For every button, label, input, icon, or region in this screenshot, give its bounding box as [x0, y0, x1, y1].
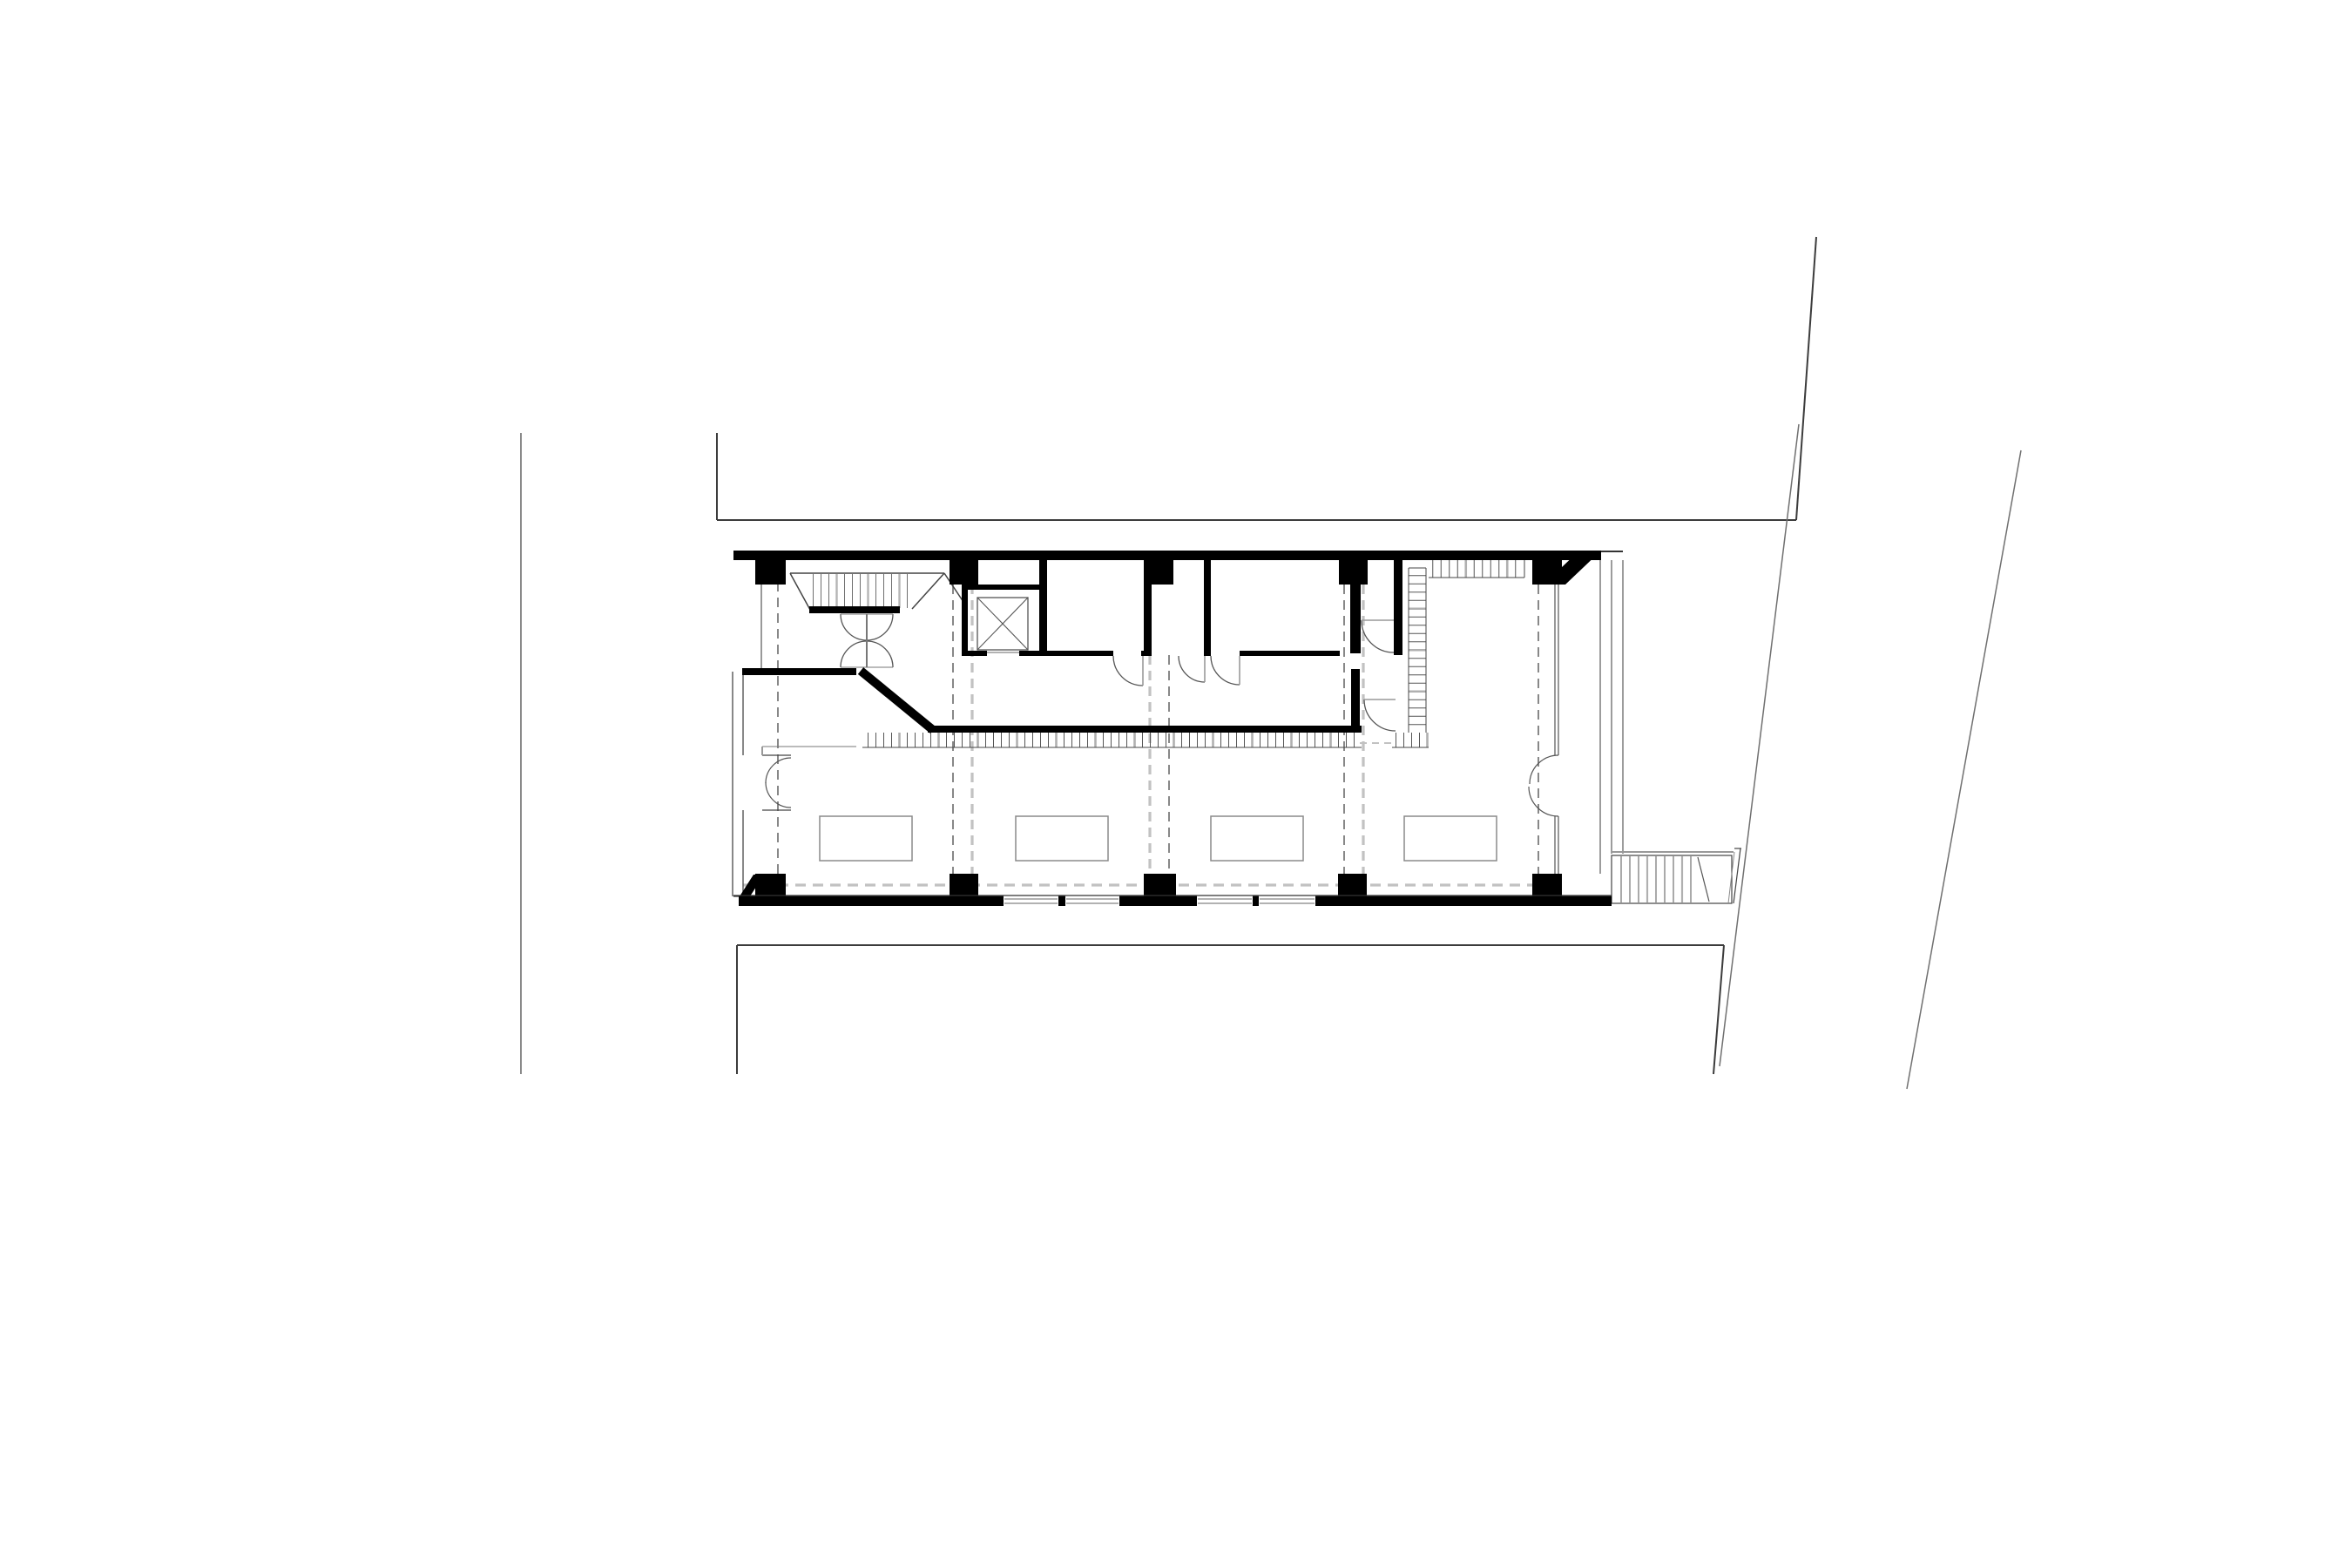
- top-wall: [733, 551, 1601, 560]
- room-wall-b: [1240, 651, 1340, 656]
- table-4: [1404, 816, 1497, 861]
- column-top-5: [1532, 560, 1562, 585]
- room-wall-a: [1047, 651, 1113, 656]
- column-bottom-3: [1144, 874, 1176, 896]
- partition-1: [1144, 560, 1152, 656]
- diagonal-wall: [861, 671, 933, 730]
- wall-counter-hatch-top: [1433, 560, 1516, 578]
- wall-counter-hatch-vertical: [1409, 576, 1426, 725]
- column-bottom-1: [755, 874, 786, 896]
- room1-door-arc: [1113, 656, 1143, 686]
- room2-right-wall: [1350, 560, 1361, 653]
- site-context: [521, 237, 2021, 1089]
- neighbor-building-top-right-edge: [1796, 237, 1816, 520]
- column-bottom-2: [950, 874, 978, 896]
- corridor-hatch-band-right: [1396, 733, 1428, 747]
- walls-black: [733, 551, 1612, 906]
- elevator-wall-right: [1039, 560, 1047, 655]
- window-1: [1004, 896, 1058, 907]
- window-3: [1197, 896, 1253, 907]
- floor-plan-page: [0, 0, 2352, 1568]
- glass-partition-door-lower: [1529, 787, 1558, 816]
- column-top-1: [755, 560, 786, 585]
- street-edge-2: [1907, 450, 2021, 1089]
- elevator-wall-bottom-right: [1019, 651, 1048, 656]
- elevator-wall-top: [962, 585, 1040, 590]
- column-bottom-4: [1338, 874, 1367, 896]
- elevator-wall-bottom-left: [962, 651, 987, 656]
- room2-door-arc-right: [1211, 656, 1240, 685]
- room-wall-stub: [1141, 651, 1152, 656]
- exterior-stair-cap-outer: [1734, 848, 1740, 903]
- window-4: [1259, 896, 1315, 907]
- partition-2: [1204, 560, 1211, 656]
- exterior-stair-break-line: [1698, 857, 1709, 902]
- floor-plan-canvas: [0, 0, 2352, 1568]
- corridor-wall: [928, 726, 1362, 733]
- table-3: [1211, 816, 1303, 861]
- column-top-2: [950, 560, 978, 585]
- window-2: [1065, 896, 1119, 907]
- main-stair-left-winder: [790, 573, 810, 610]
- room2-door-arc-left: [1179, 656, 1205, 682]
- elevator-wall-left: [962, 585, 968, 655]
- glass-partition-door-upper: [1530, 755, 1558, 784]
- right-lobby-door-arc-lower: [1364, 700, 1396, 731]
- main-stair-right-winder: [912, 573, 944, 609]
- lobby-wall-lower: [1351, 669, 1360, 730]
- vestibule-wall: [742, 668, 856, 675]
- doors: [766, 614, 1558, 816]
- table-1: [820, 816, 912, 861]
- bottom-wall: [739, 896, 1612, 906]
- right-lobby-door-arc-upper: [1362, 620, 1394, 652]
- column-bottom-5: [1532, 874, 1562, 896]
- stair-tread-edge-bar: [809, 606, 900, 613]
- exterior-stair-treads: [1621, 856, 1691, 902]
- table-2: [1016, 816, 1108, 861]
- corridor-hatch-band: [868, 733, 1355, 747]
- lobby-wall-upper: [1394, 554, 1402, 655]
- neighbor-building-bottom-right-edge: [1713, 945, 1724, 1074]
- main-stair-treads: [814, 574, 908, 608]
